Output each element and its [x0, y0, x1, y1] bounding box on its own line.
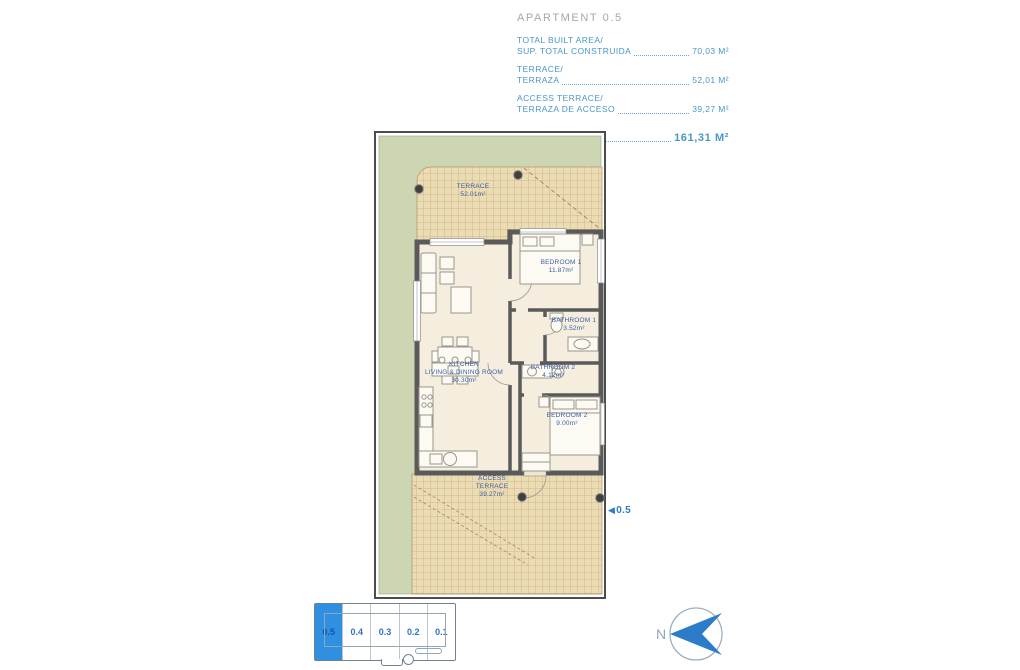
unit-label: 0.2 — [407, 627, 420, 637]
compass: N — [648, 600, 732, 668]
spec-value: 52,01 M² — [692, 75, 729, 86]
room-label-access-terrace: ACCESS TERRACE 39.27m² — [476, 475, 508, 499]
room-area: 30.30m² — [425, 377, 503, 385]
spec-label-en: TOTAL BUILT AREA/ — [517, 35, 729, 46]
spec-label-es: SUP. TOTAL CONSTRUIDA — [517, 46, 631, 57]
room-name: BEDROOM 1 — [541, 259, 582, 267]
room-area: 9.00m² — [547, 420, 588, 428]
room-label-bedroom-2: BEDROOM 2 9.00m² — [547, 412, 588, 428]
spec-row-terrace: TERRACE/ TERRAZA 52,01 M² — [517, 64, 729, 87]
brochure-page: APARTMENT 0.5 TOTAL BUILT AREA/ SUP. TOT… — [0, 0, 1020, 670]
compass-drawing: N — [648, 600, 732, 668]
room-label-bathroom-1: BATHROOM 1 3.52m² — [552, 317, 597, 333]
room-label-bedroom-1: BEDROOM 1 11.87m² — [541, 259, 582, 275]
room-name: BATHROOM 2 — [531, 364, 576, 372]
room-name: KITCHEN — [425, 361, 503, 369]
room-label-bathroom-2: BATHROOM 2 4.12m² — [531, 364, 576, 380]
room-name: BEDROOM 2 — [547, 412, 588, 420]
unit-label: 0.5 — [322, 627, 335, 637]
key-plan-notch-circle — [403, 654, 414, 665]
key-plan-balcony — [415, 648, 442, 654]
spec-row-access-terrace: ACCESS TERRACE/ TERRAZA DE ACCESO 39,27 … — [517, 93, 729, 116]
key-plan-notch — [381, 659, 403, 666]
room-name: BATHROOM 1 — [552, 317, 597, 325]
unit-label: 0.4 — [351, 627, 364, 637]
room-name: ACCESS — [476, 475, 508, 483]
key-plan-unit-0-5: 0.5 — [315, 604, 342, 660]
entrance-unit-label: 0.5 — [616, 505, 631, 516]
room-area: 11.87m² — [541, 267, 582, 275]
entrance-arrow-icon: ◀ — [608, 506, 615, 515]
room-name-2: TERRACE — [476, 483, 508, 491]
key-plan-unit-0-4: 0.4 — [342, 604, 370, 660]
entrance-marker: ◀ 0.5 — [608, 505, 631, 516]
unit-label: 0.1 — [435, 627, 448, 637]
room-area: 39.27m² — [476, 491, 508, 499]
room-area: 52.01m² — [457, 191, 489, 199]
room-name: TERRACE — [457, 183, 489, 191]
room-area: 4.12m² — [531, 372, 576, 380]
spec-label-es: TERRAZA — [517, 75, 559, 86]
north-arrow-icon — [670, 613, 722, 655]
total-value: 161,31 M² — [674, 132, 729, 144]
apartment-title: APARTMENT 0.5 — [517, 12, 729, 24]
spec-label-en: ACCESS TERRACE/ — [517, 93, 729, 104]
spec-value: 39,27 M² — [692, 104, 729, 115]
floor-plan: TERRACE 52.01m² BEDROOM 1 11.87m² BATHRO… — [374, 131, 606, 599]
dot-leader — [634, 55, 689, 56]
spec-row-total-built: TOTAL BUILT AREA/ SUP. TOTAL CONSTRUIDA … — [517, 35, 729, 58]
key-plan: 0.5 0.4 0.3 0.2 0.1 — [314, 603, 456, 661]
room-label-kitchen-living: KITCHEN LIVING & DINING ROOM 30.30m² — [425, 361, 503, 385]
north-label: N — [656, 626, 666, 642]
dot-leader — [562, 84, 689, 85]
unit-label: 0.3 — [379, 627, 392, 637]
dot-leader — [618, 113, 689, 114]
spec-label-en: TERRACE/ — [517, 64, 729, 75]
spec-value: 70,03 M² — [692, 46, 729, 57]
room-name-2: LIVING & DINING ROOM — [425, 369, 503, 377]
room-label-terrace: TERRACE 52.01m² — [457, 183, 489, 199]
room-area: 3.52m² — [552, 325, 597, 333]
key-plan-unit-0-3: 0.3 — [370, 604, 398, 660]
spec-label-es: TERRAZA DE ACCESO — [517, 104, 615, 115]
spec-panel: APARTMENT 0.5 TOTAL BUILT AREA/ SUP. TOT… — [517, 12, 729, 144]
